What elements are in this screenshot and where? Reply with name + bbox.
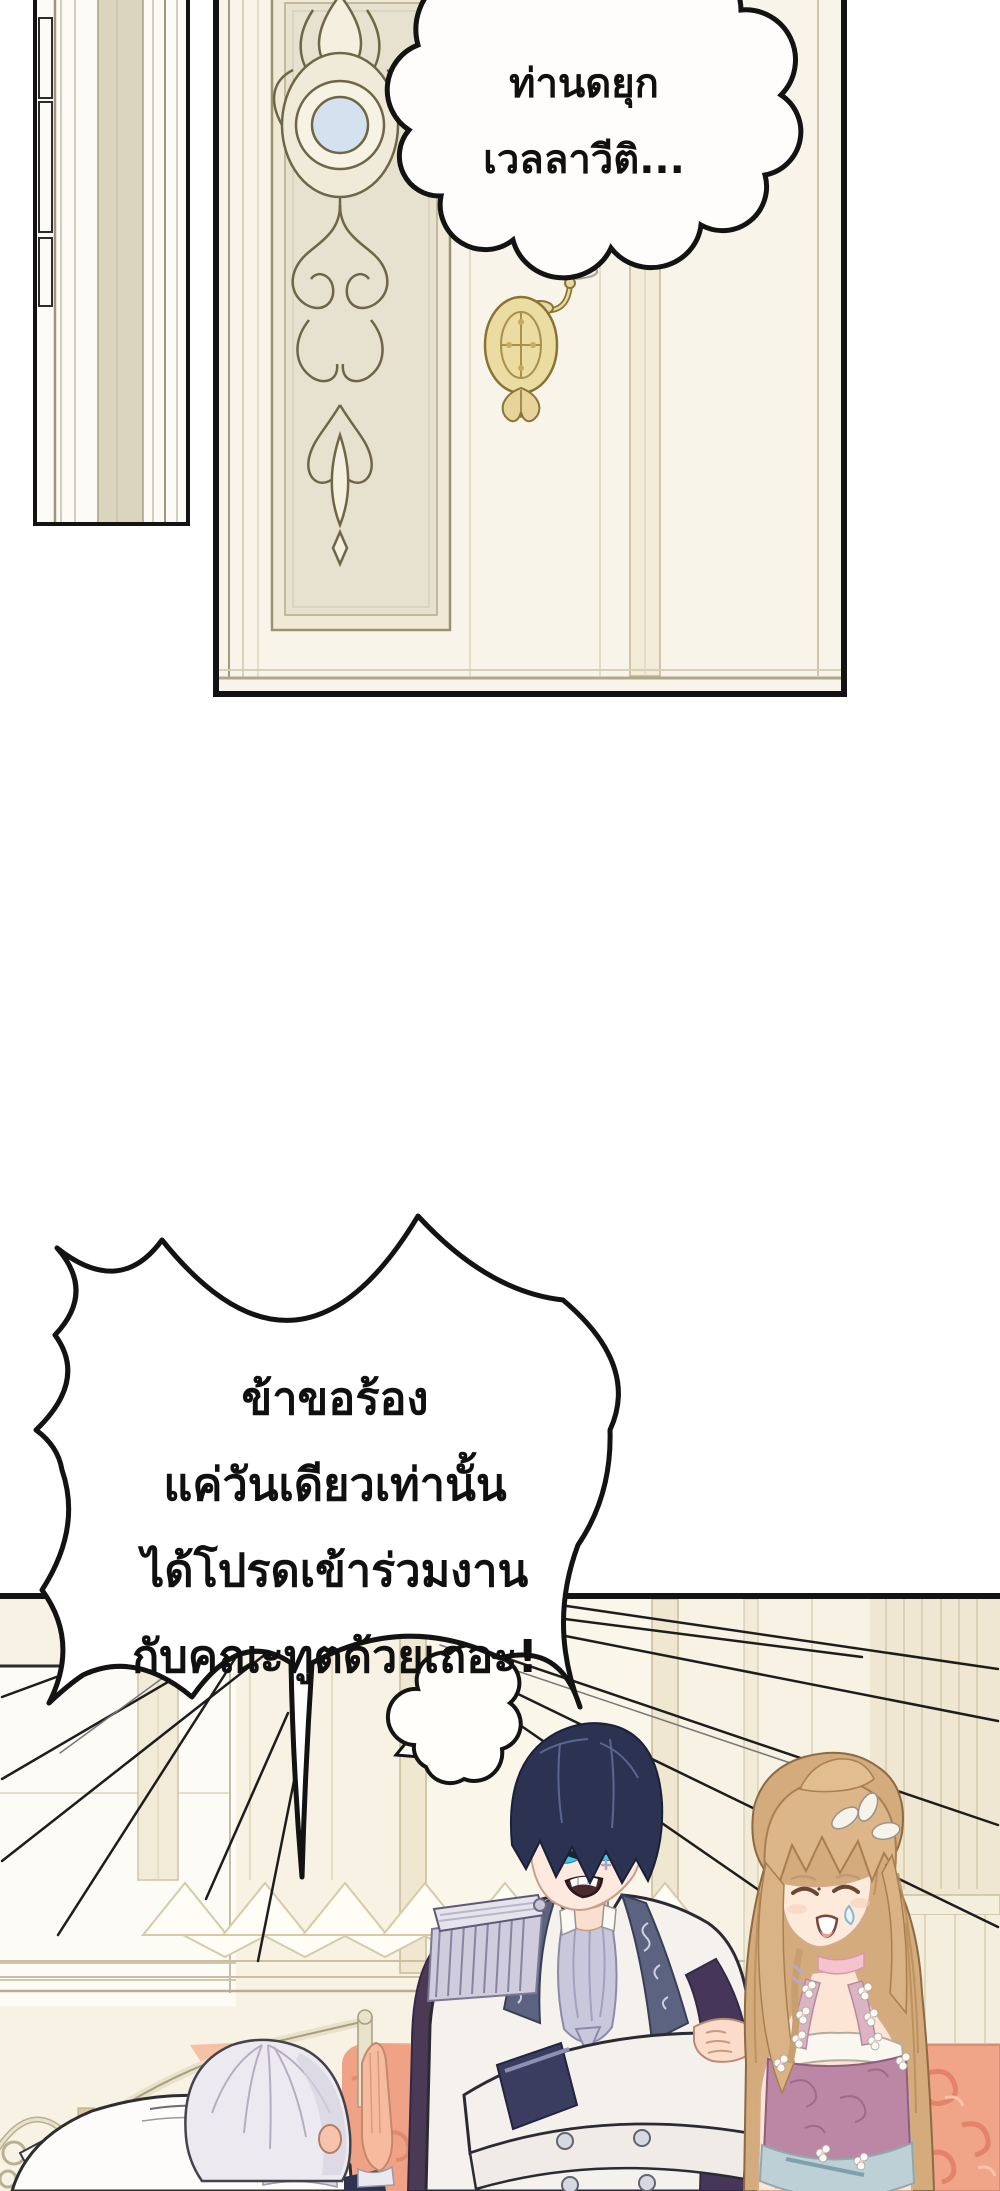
cravat (558, 1915, 617, 2043)
burst-line: กับคณะทูตด้วยเถอะ! (95, 1614, 575, 1700)
speech-line: ท่านดยุก (414, 46, 754, 122)
speech-line: เวลลาวีติ... (414, 122, 754, 198)
burst-text-plea: ข้าขอร้อง แค่วันเดียวเท่านั้น ได้โปรดเข้… (95, 1356, 575, 1700)
epaulette (428, 1895, 546, 2001)
comic-page: ท่านดยุก เวลลาวีติ... (0, 0, 1000, 2191)
speech-text-duke-call: ท่านดยุก เวลลาวีติ... (414, 46, 754, 198)
burst-line: ได้โปรดเข้าร่วมงาน (95, 1528, 575, 1614)
elder-ear (319, 2125, 341, 2153)
burst-line: ข้าขอร้อง (95, 1356, 575, 1442)
burst-line: แค่วันเดียวเท่านั้น (95, 1442, 575, 1528)
panel-wall-strip (33, 0, 190, 526)
wall-strip-art (37, 0, 186, 522)
